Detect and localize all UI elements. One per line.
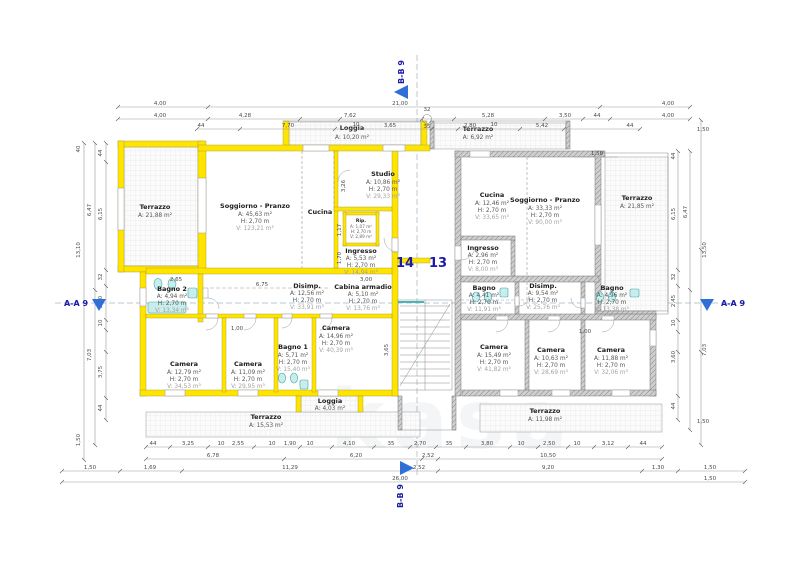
room-name: Bagno 1 bbox=[278, 343, 308, 351]
floor-plan-canvas: kasa bbox=[0, 0, 800, 565]
room-area: A: 9,54 m² bbox=[528, 290, 558, 297]
room-volume: V: 14,94 m³ bbox=[344, 269, 378, 276]
dim-label: 10 bbox=[518, 441, 525, 447]
dim-label: 2,70 bbox=[414, 441, 427, 447]
dim-label: 7,70 bbox=[282, 123, 295, 129]
dim-label: 1,50 bbox=[697, 419, 710, 425]
room-name: Cabina armadio bbox=[334, 283, 392, 291]
dim-label: 1,70 bbox=[337, 251, 343, 264]
room-volume: V: 28,69 m³ bbox=[534, 369, 568, 376]
dim-label: 2,52 bbox=[413, 465, 425, 471]
section-label-aa-right: A-A 9 bbox=[721, 299, 745, 308]
dim-label: 10,50 bbox=[540, 453, 556, 459]
dim-label: 2,50 bbox=[543, 441, 556, 447]
dim-label: 1,30 bbox=[652, 465, 665, 471]
room-label-ingresso-14: Ingresso A: 5,53 m² H: 2,70 m V: 14,94 m… bbox=[344, 247, 378, 276]
dim-label: 6,47 bbox=[683, 205, 689, 218]
room-area: A: 6,92 m² bbox=[463, 134, 493, 141]
room-area: A: 21,85 m² bbox=[620, 203, 654, 210]
room-volume: V: 29,95 m³ bbox=[231, 383, 265, 390]
room-name: Camera bbox=[234, 360, 262, 368]
room-label-rip: Rip. A: 1,07 m² H: 2,70 m V: 2,89 m³ bbox=[350, 218, 372, 239]
dim-label: 2,55 bbox=[232, 441, 245, 447]
room-volume: V: 41,82 m³ bbox=[477, 366, 511, 373]
room-name: Loggia bbox=[318, 397, 343, 405]
dim-label: 1,50 bbox=[704, 465, 717, 471]
room-area: A: 5,10 m² bbox=[348, 291, 378, 298]
dim-label: 3,12 bbox=[602, 441, 614, 447]
dim-label: 1,69 bbox=[144, 465, 157, 471]
dim-label: 4,00 bbox=[154, 113, 167, 119]
dim-label: 1,50 bbox=[591, 151, 604, 157]
room-area: A: 4,41 m² bbox=[469, 292, 499, 299]
dim-label: 26,00 bbox=[392, 476, 408, 482]
room-label-camera1-13: Camera A: 15,49 m² H: 2,70 m V: 41,82 m³ bbox=[477, 343, 512, 373]
room-height: H: 2,70 m bbox=[170, 377, 199, 383]
dim-label: 44 bbox=[150, 441, 157, 447]
section-label-bb-top: B-B 9 bbox=[397, 60, 406, 84]
dim-label: 6,47 bbox=[87, 203, 93, 216]
room-label-camera2-14: Camera A: 11,09 m² H: 2,70 m V: 29,95 m³ bbox=[231, 360, 266, 390]
dim-label: 4,00 bbox=[662, 101, 675, 107]
room-volume: V: 123,21 m³ bbox=[236, 225, 274, 232]
room-volume: V: 29,33 m³ bbox=[366, 193, 400, 200]
dim-label: 2,45 bbox=[671, 294, 677, 307]
dim-label: 44 bbox=[640, 441, 647, 447]
room-area: A: 10,63 m² bbox=[534, 355, 568, 362]
room-name: Bagno bbox=[472, 284, 496, 292]
room-height: H: 2,70 m bbox=[598, 300, 627, 306]
room-height: H: 2,70 m bbox=[478, 208, 507, 214]
dim-label: 4,28 bbox=[239, 113, 252, 119]
dim-label: 35 bbox=[388, 441, 395, 447]
room-height: H: 2,70 m bbox=[279, 360, 308, 366]
dim-label: 35 bbox=[424, 124, 431, 130]
room-height: H: 2,70 m bbox=[241, 219, 270, 225]
room-name: Terrazzo bbox=[530, 407, 561, 415]
room-volume: V: 25,76 m³ bbox=[526, 304, 560, 311]
dim-label: 10 bbox=[574, 441, 581, 447]
room-volume: V: 8,00 m³ bbox=[468, 266, 499, 273]
dim-label: 6,75 bbox=[256, 282, 269, 288]
room-height: H: 2,70 m bbox=[293, 298, 322, 304]
room-name: Ingresso bbox=[345, 247, 377, 255]
dim-label: 1,17 bbox=[337, 223, 343, 236]
room-name: Disimp. bbox=[529, 282, 557, 290]
room-name: Cucina bbox=[480, 191, 505, 199]
dim-label: 4,00 bbox=[154, 101, 167, 107]
room-label-camera3-13: Camera A: 11,88 m² H: 2,70 m V: 32,06 m³ bbox=[594, 346, 629, 376]
room-label-bagno2: Bagno 2 A: 4,94 m² H: 2,70 m V: 13,34 m³ bbox=[155, 285, 189, 314]
dim-label: 6,15 bbox=[671, 207, 677, 220]
dim-label: 44 bbox=[198, 123, 205, 129]
room-height: H: 2,70 m bbox=[597, 363, 626, 369]
dim-label: 35 bbox=[446, 441, 453, 447]
room-height: H: 2,70 m bbox=[531, 213, 560, 219]
room-height: H: 2,70 m bbox=[158, 301, 187, 307]
dim-label: 10 bbox=[307, 441, 314, 447]
room-area: A: 11,98 m² bbox=[528, 416, 562, 423]
dim-label: 44 bbox=[594, 113, 601, 119]
room-area: A: 4,94 m² bbox=[157, 293, 187, 300]
dim-label: 10 bbox=[98, 319, 104, 326]
dim-label: 1,90 bbox=[284, 441, 297, 447]
dim-label: 1,50 bbox=[84, 465, 97, 471]
room-height: H: 2,70 m bbox=[470, 300, 499, 306]
room-name: Terrazzo bbox=[140, 203, 171, 211]
dim-label: 3,65 bbox=[384, 123, 397, 129]
room-name: Camera bbox=[597, 346, 625, 354]
dim-label: 44 bbox=[627, 123, 634, 129]
dim-label: 10 bbox=[353, 122, 360, 128]
room-name: Disimp. bbox=[293, 282, 321, 290]
section-label-bb-bottom: B-B 9 bbox=[396, 484, 405, 508]
room-label-soggiorno-13: Soggiorno - Pranzo A: 33,33 m² H: 2,70 m… bbox=[510, 196, 580, 226]
dimensions-right: 1,50 13,50 7,03 1,50 6,47 44 6,15 32 2,4… bbox=[671, 118, 710, 447]
dim-label: 10 bbox=[269, 441, 276, 447]
dim-label: 1,50 bbox=[697, 127, 710, 133]
room-height: H: 2,70 m bbox=[349, 299, 378, 305]
room-volume: V: 34,53 m³ bbox=[167, 383, 201, 390]
dim-label: 4,10 bbox=[343, 441, 356, 447]
dim-label: 40 bbox=[76, 145, 82, 152]
room-volume: V: 90,00 m³ bbox=[528, 219, 562, 226]
room-area: A: 10,20 m² bbox=[335, 134, 369, 141]
room-label-camera1-14: Camera A: 12,79 m² H: 2,70 m V: 34,53 m³ bbox=[167, 360, 202, 390]
room-name: Terrazzo bbox=[622, 194, 653, 202]
section-marker-left: A-A 9 bbox=[64, 299, 106, 311]
dim-label: 2,80 bbox=[464, 123, 477, 129]
room-area: A: 5,53 m² bbox=[346, 255, 376, 262]
dim-label: 7,03 bbox=[702, 343, 708, 356]
room-area: A: 4,96 m² bbox=[597, 292, 627, 299]
dim-label: 7,62 bbox=[344, 113, 356, 119]
dim-label: 3,50 bbox=[559, 113, 572, 119]
dim-label: 6,20 bbox=[350, 453, 363, 459]
unit-number-13: 13 bbox=[429, 256, 447, 271]
room-height: H: 2,70 m bbox=[369, 187, 398, 193]
dim-label: 13,50 bbox=[702, 242, 708, 258]
room-area: A: 11,88 m² bbox=[594, 355, 628, 362]
room-area: A: 4,03 m² bbox=[315, 405, 345, 412]
dim-label: 32 bbox=[424, 107, 431, 113]
room-volume: V: 13,34 m³ bbox=[155, 307, 189, 314]
dim-label: 44 bbox=[98, 404, 104, 411]
room-label-bagno1: Bagno 1 A: 5,71 m² H: 2,70 m V: 15,40 m³ bbox=[276, 343, 310, 373]
dim-label: 44 bbox=[98, 149, 104, 156]
room-height: H: 2,70 m bbox=[322, 341, 351, 347]
dim-label: 6,78 bbox=[207, 453, 220, 459]
room-volume: V: 13,76 m³ bbox=[346, 305, 380, 312]
floor-plan: kasa bbox=[0, 0, 800, 565]
unit-number-14: 14 bbox=[396, 256, 414, 271]
room-label-cabina-armadio: Cabina armadio A: 5,10 m² H: 2,70 m V: 1… bbox=[334, 283, 392, 312]
room-area: A: 2,96 m² bbox=[468, 252, 498, 259]
room-name: Soggiorno - Pranzo bbox=[510, 196, 580, 204]
room-label-bagno-a-13: Bagno A: 4,41 m² H: 2,70 m V: 11,91 m³ bbox=[467, 284, 501, 313]
room-label-cucina-14: Cucina bbox=[308, 208, 333, 216]
room-label-soggiorno-14: Soggiorno - Pranzo A: 45,63 m² H: 2,70 m… bbox=[220, 202, 290, 232]
room-area: A: 11,09 m² bbox=[231, 369, 265, 376]
room-label-loggia-bottom: Loggia A: 4,03 m² bbox=[315, 397, 345, 412]
room-volume: V: 2,89 m³ bbox=[350, 234, 372, 239]
dim-label: 11,29 bbox=[282, 465, 298, 471]
dim-label: 5,42 bbox=[536, 123, 548, 129]
dim-label: 1,50 bbox=[704, 476, 717, 482]
room-label-ingresso-13: Ingresso A: 2,96 m² H: 2,70 m V: 8,00 m³ bbox=[467, 244, 499, 273]
dim-label: 32 bbox=[671, 274, 677, 281]
dim-label: 3,80 bbox=[481, 441, 494, 447]
dim-label: 3,25 bbox=[182, 441, 195, 447]
room-name: Camera bbox=[322, 324, 350, 332]
room-name: Camera bbox=[537, 346, 565, 354]
dim-label: 9,20 bbox=[542, 465, 555, 471]
room-volume: V: 13,38 m³ bbox=[595, 306, 629, 313]
room-area: A: 33,33 m² bbox=[528, 205, 562, 212]
dim-label: 5,28 bbox=[482, 113, 495, 119]
room-height: H: 2,70 m bbox=[529, 298, 558, 304]
room-area: A: 45,63 m² bbox=[238, 211, 272, 218]
dim-label: 3,00 bbox=[360, 277, 373, 283]
room-volume: V: 32,06 m³ bbox=[594, 369, 628, 376]
dim-label: 10 bbox=[218, 441, 225, 447]
room-name: Ingresso bbox=[467, 244, 499, 252]
room-name: Bagno 2 bbox=[157, 285, 187, 293]
dim-label: 3,65 bbox=[384, 343, 390, 356]
dim-label: 3,60 bbox=[671, 350, 677, 363]
room-area: A: 12,79 m² bbox=[167, 369, 201, 376]
room-area: A: 21,88 m² bbox=[138, 212, 172, 219]
room-name: Camera bbox=[480, 343, 508, 351]
dim-label: 44 bbox=[671, 152, 677, 159]
section-arrow-icon bbox=[394, 85, 408, 99]
room-volume: V: 33,91 m³ bbox=[290, 304, 324, 311]
room-label-camera3-14: Camera A: 14,96 m² H: 2,70 m V: 40,39 m³ bbox=[319, 324, 354, 354]
section-marker-right: A-A 9 bbox=[700, 299, 745, 311]
room-area: A: 10,86 m² bbox=[366, 179, 400, 186]
room-volume: V: 40,39 m³ bbox=[319, 347, 353, 354]
room-label-camera2-13: Camera A: 10,63 m² H: 2,70 m V: 28,69 m³ bbox=[534, 346, 569, 376]
dim-label: 32 bbox=[98, 274, 104, 281]
room-name: Studio bbox=[371, 170, 395, 178]
room-area: A: 5,71 m² bbox=[278, 352, 308, 359]
room-volume: V: 33,65 m³ bbox=[475, 214, 509, 221]
dim-label: 1,50 bbox=[76, 433, 82, 446]
room-area: A: 12,56 m² bbox=[290, 290, 324, 297]
dim-label: 10 bbox=[671, 319, 677, 326]
section-arrow-icon bbox=[700, 299, 714, 311]
dim-label: 1,00 bbox=[231, 326, 244, 332]
room-height: H: 2,70 m bbox=[347, 263, 376, 269]
room-volume: V: 11,91 m³ bbox=[467, 306, 501, 313]
room-area: A: 14,96 m² bbox=[319, 333, 353, 340]
room-height: H: 2,70 m bbox=[537, 363, 566, 369]
dim-label: 4,00 bbox=[662, 113, 675, 119]
room-label-disimp-14: Disimp. A: 12,56 m² H: 2,70 m V: 33,91 m… bbox=[290, 282, 325, 311]
dim-label: 13,10 bbox=[76, 242, 82, 258]
section-marker-top: B-B 9 bbox=[394, 60, 408, 99]
room-name: Soggiorno - Pranzo bbox=[220, 202, 290, 210]
dim-label: 2,52 bbox=[422, 453, 434, 459]
dim-label: 3,26 bbox=[341, 179, 347, 192]
room-area: A: 15,49 m² bbox=[477, 352, 511, 359]
dim-label: 7,03 bbox=[87, 348, 93, 361]
room-volume: V: 15,40 m³ bbox=[276, 366, 310, 373]
room-name: Camera bbox=[170, 360, 198, 368]
room-label-cucina-13: Cucina A: 12,46 m² H: 2,70 m V: 33,65 m³ bbox=[475, 191, 510, 221]
room-name: Terrazzo bbox=[251, 413, 282, 421]
room-area: A: 12,46 m² bbox=[475, 200, 509, 207]
dim-label: 21,00 bbox=[392, 101, 408, 107]
dim-label: 6,15 bbox=[98, 207, 104, 220]
room-height: H: 2,70 m bbox=[480, 360, 509, 366]
dim-label: 3,75 bbox=[98, 365, 104, 378]
section-label-aa-left: A-A 9 bbox=[64, 299, 88, 308]
dim-label: 44 bbox=[671, 402, 677, 409]
dim-label: 2,65 bbox=[170, 277, 183, 283]
room-height: H: 2,70 m bbox=[234, 377, 263, 383]
room-name: Bagno bbox=[600, 284, 624, 292]
section-marker-bottom: B-B 9 bbox=[396, 461, 414, 508]
room-height: H: 2,70 m bbox=[469, 260, 498, 266]
room-label-disimp-13: Disimp. A: 9,54 m² H: 2,70 m V: 25,76 m³ bbox=[526, 282, 560, 311]
dim-label: 1,00 bbox=[579, 329, 592, 335]
room-area: A: 15,53 m² bbox=[249, 422, 283, 429]
dim-label: 10 bbox=[491, 122, 498, 128]
